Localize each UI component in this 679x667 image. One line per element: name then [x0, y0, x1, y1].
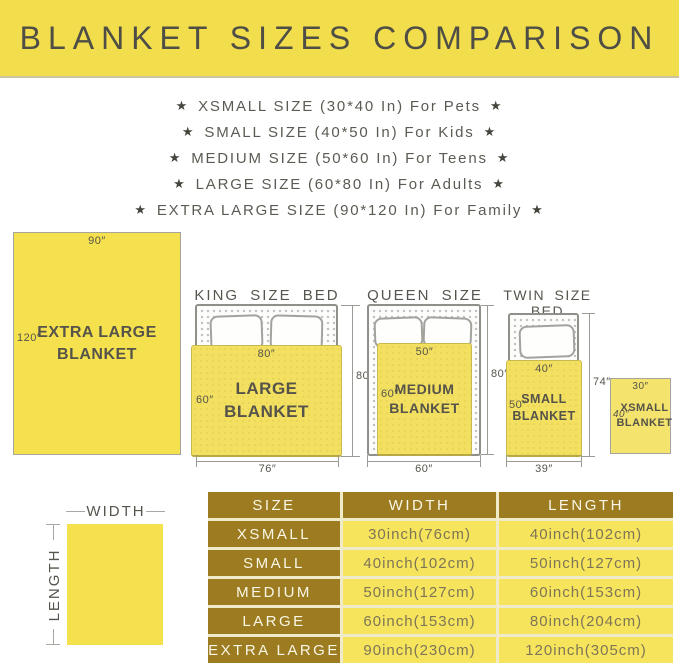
- legend-blanket-swatch: [67, 524, 163, 645]
- table-cell: 120inch(305cm): [499, 637, 673, 663]
- size-list-text: XSMALL SIZE (30*40 In) For Pets: [198, 98, 481, 115]
- table-row-label: SMALL: [208, 550, 340, 576]
- star-icon: ★: [484, 124, 497, 139]
- page-title: BLANKET SIZES COMPARISON: [20, 20, 660, 57]
- dim-line: [352, 305, 353, 457]
- dim-tick: [341, 305, 360, 306]
- list-item: ★SMALL SIZE (40*50 In) For Kids★: [0, 119, 679, 145]
- queen-width-label: 60″: [367, 463, 481, 475]
- star-icon: ★: [497, 150, 510, 165]
- legend-tick: [66, 511, 85, 512]
- table-cell: 50inch(127cm): [343, 579, 496, 605]
- star-icon: ★: [169, 150, 182, 165]
- medium-blanket-length-label: 60″: [381, 388, 399, 400]
- small-blanket-width-label: 40″: [507, 363, 581, 375]
- medium-blanket-label: MEDIUM BLANKET: [389, 380, 459, 418]
- list-item: ★MEDIUM SIZE (50*60 In) For Teens★: [0, 145, 679, 171]
- large-blanket: 80″ 60″ LARGE BLANKET: [191, 345, 342, 457]
- xsmall-blanket: 30″ 40″ XSMALL BLANKET: [610, 378, 671, 454]
- xl-width-label: 90″: [14, 235, 180, 247]
- table-cell: 40inch(102cm): [343, 550, 496, 576]
- legend-tick: [46, 644, 60, 645]
- twin-width-label: 39″: [506, 463, 582, 475]
- legend-length-label: LENGTH: [46, 541, 62, 629]
- star-icon: ★: [134, 202, 147, 217]
- list-item: ★EXTRA LARGE SIZE (90*120 In) For Family…: [0, 197, 679, 223]
- dim-line: [196, 461, 339, 462]
- king-bed-title: KING SIZE BED: [193, 287, 341, 304]
- size-list-text: LARGE SIZE (60*80 In) For Adults: [196, 176, 484, 193]
- size-list-text: SMALL SIZE (40*50 In) For Kids: [204, 124, 474, 141]
- large-blanket-label: LARGE BLANKET: [192, 378, 341, 424]
- list-item: ★LARGE SIZE (60*80 In) For Adults★: [0, 171, 679, 197]
- dim-tick: [481, 305, 494, 306]
- dim-line: [487, 305, 488, 455]
- legend-tick: [146, 511, 165, 512]
- table-cell: 50inch(127cm): [499, 550, 673, 576]
- legend-line: [53, 629, 54, 645]
- table-cell: 40inch(102cm): [499, 521, 673, 547]
- dim-line: [589, 313, 590, 457]
- dim-tick: [582, 456, 595, 457]
- table-cell: 30inch(76cm): [343, 521, 496, 547]
- xs-width-label: 30″: [611, 381, 670, 392]
- dim-line: [506, 461, 582, 462]
- large-blanket-width-label: 80″: [192, 348, 341, 360]
- table-row-label: MEDIUM: [208, 579, 340, 605]
- star-icon: ★: [173, 176, 186, 191]
- xl-blanket-label: EXTRA LARGE BLANKET: [37, 322, 157, 365]
- star-icon: ★: [492, 176, 505, 191]
- table-row-label: EXTRA LARGE: [208, 637, 340, 663]
- table-row-label: XSMALL: [208, 521, 340, 547]
- table-row-label: LARGE: [208, 608, 340, 634]
- table-cell: 60inch(153cm): [343, 608, 496, 634]
- size-table: SIZE WIDTH LENGTH XSMALL 30inch(76cm) 40…: [208, 492, 673, 663]
- king-width-label: 76″: [196, 463, 339, 475]
- size-list: ★XSMALL SIZE (30*40 In) For Pets★ ★SMALL…: [0, 93, 679, 223]
- small-blanket: 40″ 50″ SMALL BLANKET: [506, 360, 582, 457]
- star-icon: ★: [490, 98, 503, 113]
- table-header-width: WIDTH: [343, 492, 496, 518]
- star-icon: ★: [176, 98, 189, 113]
- table-cell: 90inch(230cm): [343, 637, 496, 663]
- dim-tick: [481, 454, 494, 455]
- large-blanket-length-label: 60″: [196, 394, 214, 406]
- legend-line: [53, 524, 54, 540]
- size-list-text: EXTRA LARGE SIZE (90*120 In) For Family: [157, 202, 522, 219]
- star-icon: ★: [182, 124, 195, 139]
- dim-tick: [341, 456, 360, 457]
- dim-tick: [582, 313, 595, 314]
- star-icon: ★: [531, 202, 544, 217]
- legend-tick: [46, 524, 60, 525]
- list-item: ★XSMALL SIZE (30*40 In) For Pets★: [0, 93, 679, 119]
- page-root: BLANKET SIZES COMPARISON ★XSMALL SIZE (3…: [0, 0, 679, 667]
- xl-length-label: 120″: [17, 332, 41, 344]
- extra-large-blanket: 90″ 120″ EXTRA LARGE BLANKET: [13, 232, 181, 455]
- table-cell: 60inch(153cm): [499, 579, 673, 605]
- legend-width-label: WIDTH: [86, 503, 146, 520]
- size-list-text: MEDIUM SIZE (50*60 In) For Teens: [191, 150, 488, 167]
- xs-length-label: 40″: [613, 409, 629, 420]
- table-header-size: SIZE: [208, 492, 340, 518]
- small-blanket-length-label: 50″: [509, 399, 527, 411]
- table-header-length: LENGTH: [499, 492, 673, 518]
- banner: BLANKET SIZES COMPARISON: [0, 0, 679, 78]
- medium-blanket-width-label: 50″: [378, 346, 471, 358]
- medium-blanket: 50″ 60″ MEDIUM BLANKET: [377, 343, 472, 456]
- pillow: [518, 324, 575, 359]
- dim-line: [367, 461, 481, 462]
- table-cell: 80inch(204cm): [499, 608, 673, 634]
- twin-length-label: 74″: [593, 376, 611, 388]
